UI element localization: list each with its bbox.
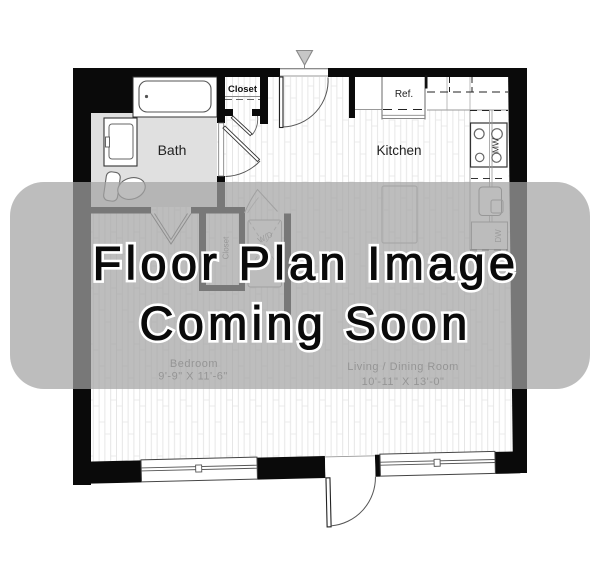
svg-text:Closet: Closet <box>228 84 258 95</box>
svg-text:Kitchen: Kitchen <box>376 143 421 158</box>
svg-text:Ref.: Ref. <box>395 89 413 100</box>
svg-text:MW: MW <box>491 138 501 153</box>
svg-text:Floor Plan Image: Floor Plan Image <box>93 237 520 290</box>
svg-text:Bath: Bath <box>158 142 187 158</box>
svg-text:Coming Soon: Coming Soon <box>139 297 471 350</box>
